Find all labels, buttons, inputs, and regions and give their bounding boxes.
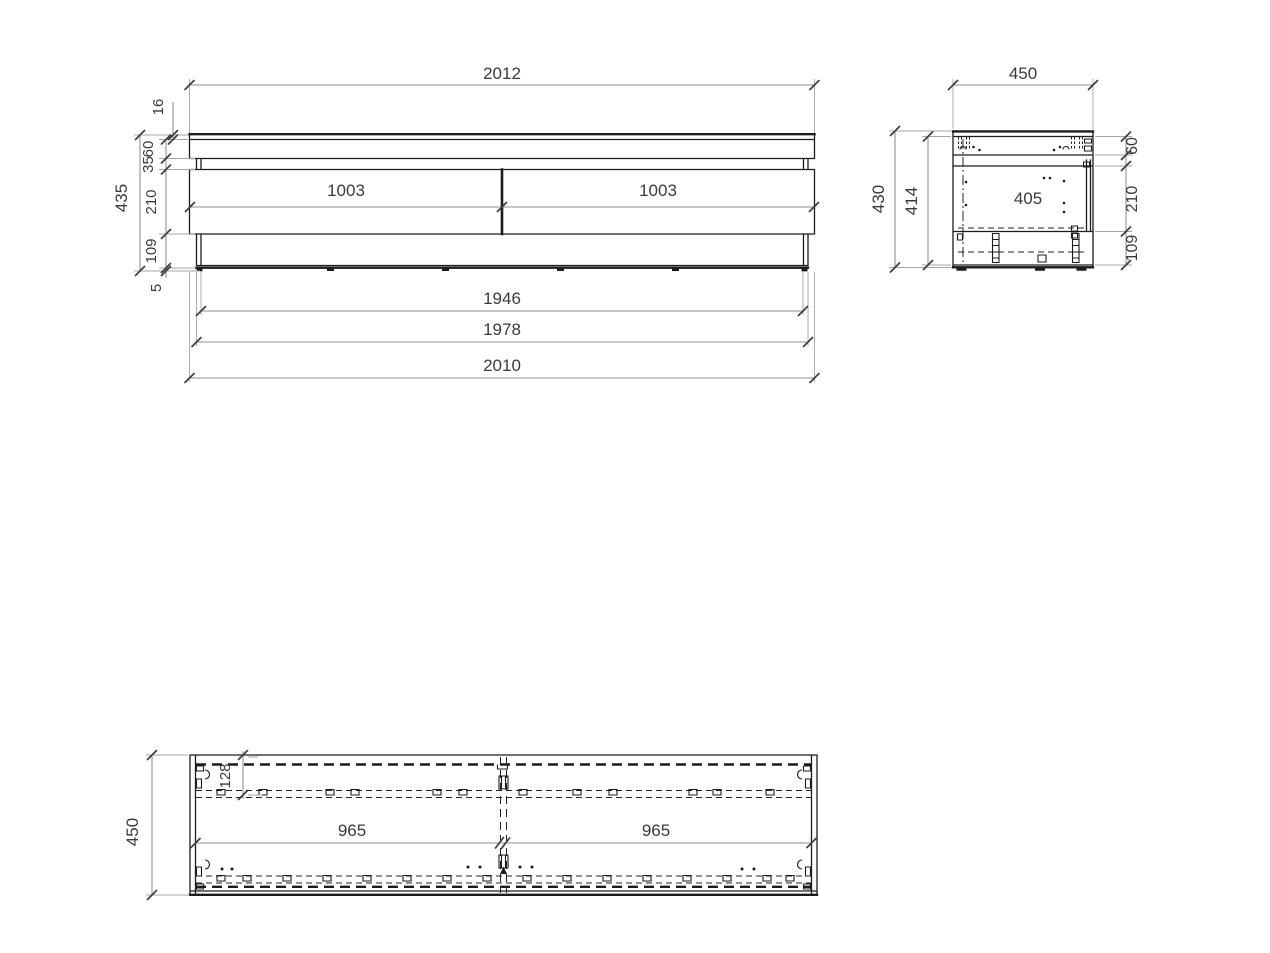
side-view: 450 430 414 405 60 210 109: [869, 64, 1141, 272]
dim-front-drawer-left: 1003: [327, 181, 365, 200]
dim-side-inner-depth: 405: [1014, 189, 1042, 208]
plan-view: 450 128 965 965: [123, 751, 817, 900]
dim-front-base-height: 109: [143, 238, 160, 263]
dim-side-depth: 450: [1009, 64, 1037, 83]
dim-side-overall-height: 430: [869, 185, 888, 213]
dim-front-inner-width: 1946: [483, 289, 521, 308]
plan-extension-lines: [146, 755, 262, 895]
plan-rail-dashed-top: [196, 791, 811, 798]
dim-front-drawer-right: 1003: [639, 181, 677, 200]
dim-plan-bay-left: 965: [338, 821, 366, 840]
plan-screw-dots: [221, 866, 756, 871]
dim-plan-bay-right: 965: [642, 821, 670, 840]
dim-plan-depth: 450: [123, 818, 142, 846]
plan-rail-dashed-bottom: [196, 876, 811, 883]
front-dimension-lines: [140, 85, 815, 378]
side-fitting-hidden-lines: [959, 137, 1083, 150]
plan-dimension-ticks: [148, 751, 817, 900]
side-dimension-ticks: [891, 81, 1131, 273]
dim-side-body-height: 414: [902, 187, 921, 215]
front-extension-lines: [134, 79, 815, 382]
dim-front-overall-top: 2012: [483, 64, 521, 83]
dim-front-overall-height: 435: [112, 184, 131, 212]
dim-front-overall-bottom: 2010: [483, 356, 521, 375]
dim-front-drawer-height: 210: [143, 189, 160, 214]
front-dimension-ticks: [136, 81, 820, 383]
dim-front-top-panel: 16: [150, 99, 167, 116]
drawing-sheet: 2012 16 60 35 435 210 109 5 1003 1003 19…: [0, 0, 1270, 953]
technical-drawing-canvas: 2012 16 60 35 435 210 109 5 1003 1003 19…: [0, 0, 1270, 953]
plan-dimension-lines: [152, 751, 812, 895]
dim-front-reveal: 35: [140, 156, 157, 173]
side-extension-lines: [889, 79, 1132, 268]
dim-front-upper-band: 60: [140, 141, 157, 158]
dim-front-carcass-width: 1978: [483, 320, 521, 339]
side-dimension-lines: [895, 85, 1126, 268]
dim-side-top-band: 60: [1124, 137, 1141, 155]
dim-side-base-height: 109: [1124, 235, 1141, 262]
dim-side-drawer-height: 210: [1124, 186, 1141, 213]
dim-plan-back-offset: 128: [217, 763, 234, 788]
dim-front-foot-height: 5: [148, 284, 165, 292]
front-view: 2012 16 60 35 435 210 109 5 1003 1003 19…: [112, 64, 819, 383]
